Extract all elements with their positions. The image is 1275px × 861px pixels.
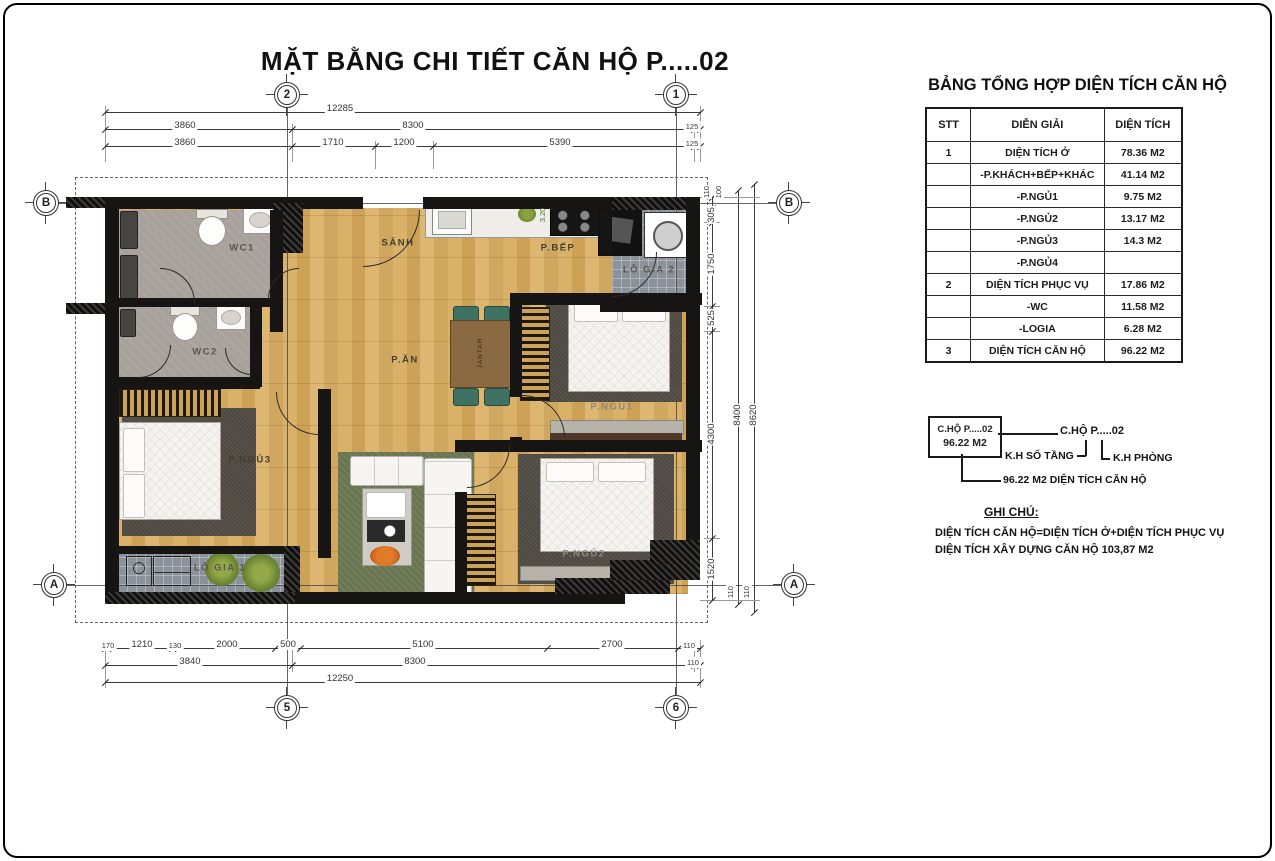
wall-hatch-bottom: [105, 592, 297, 604]
wall: [270, 210, 283, 332]
dim-label: 8300: [400, 120, 425, 131]
table-header-row: STT DIỄN GIẢI DIỆN TÍCH: [926, 108, 1182, 142]
wc1-shower: [120, 211, 138, 249]
wc2-sink-basin: [221, 310, 241, 325]
col-header-description: DIỄN GIẢI: [971, 108, 1104, 142]
bedroom3-pillow: [123, 428, 145, 472]
grid-bubble-B-right: B: [776, 190, 802, 216]
dim-line: [105, 112, 700, 113]
unit-code: C.HỘ P.....02: [937, 423, 992, 437]
bedroom2-pillow: [546, 462, 594, 482]
table-row: 3DIỆN TÍCH CĂN HỘ96.22 M2: [926, 340, 1182, 363]
wall-hatch-stub: [66, 197, 105, 208]
dim-label: 305: [707, 206, 717, 224]
dim-label: 12285: [325, 103, 355, 114]
grid-bubble-1: 1: [663, 82, 689, 108]
dim-label: 8300: [402, 656, 427, 667]
notes-heading: GHI CHÚ:: [984, 505, 1039, 519]
kitchen-sink-basin: [438, 211, 466, 229]
dim-label: 110: [726, 585, 736, 599]
plant: [242, 554, 280, 592]
area-table-title: BẢNG TỔNG HỢP DIỆN TÍCH CĂN HỘ: [905, 76, 1250, 95]
wall: [510, 293, 702, 305]
bedroom3-pillow: [123, 474, 145, 518]
blueprint-page: { "title": "MẶT BẰNG CHI TIẾT CĂN HỘ P..…: [0, 0, 1275, 861]
col-header-area: DIỆN TÍCH: [1104, 108, 1182, 142]
dim-label: 1210: [129, 639, 154, 650]
dim-line: [738, 190, 739, 604]
tech-box: [126, 556, 152, 586]
dining-chair: [453, 388, 479, 406]
wall: [118, 377, 260, 389]
table-row: -P.KHÁCH+BẾP+KHÁC41.14 M2: [926, 164, 1182, 186]
dim-label: 1710: [320, 137, 345, 148]
dim-label: 5390: [547, 137, 572, 148]
dim-label: 170: [100, 640, 117, 651]
bedroom1-wardrobe: [520, 307, 550, 401]
unit-code-box: C.HỘ P.....02 96.22 M2: [928, 416, 1002, 458]
dim-label: 3840: [177, 656, 202, 667]
dim-label: 125: [684, 138, 701, 149]
tray: [366, 492, 406, 518]
wall-right: [686, 197, 700, 555]
floor-code-label: K.H SỐ TẦNG: [1005, 450, 1074, 462]
table-row: -P.NGỦ4: [926, 252, 1182, 274]
fruit-dish: [370, 546, 400, 566]
wall: [600, 210, 612, 254]
bedroom3-wardrobe: [119, 389, 221, 417]
wc1-shower2: [120, 255, 138, 301]
wall-step: [555, 578, 670, 594]
stove: [550, 206, 599, 236]
room-label-pngu2: P.NGỦ2: [562, 549, 605, 560]
table-row: 2DIỆN TÍCH PHỤC VỤ17.86 M2: [926, 274, 1182, 296]
unit-area-note: 96.22 M2 DIỆN TÍCH CĂN HỘ: [1003, 474, 1147, 486]
wc1-toilet: [198, 216, 226, 246]
dining-chair: [484, 388, 510, 406]
wc1-sink-basin: [249, 212, 271, 228]
wall: [118, 546, 298, 554]
notes-line1: DIỆN TÍCH CĂN HỘ=DIỆN TÍCH Ở+DIỆN TÍCH P…: [935, 527, 1224, 539]
dim-line: [105, 682, 700, 683]
grid-bubble-A-left: A: [41, 572, 67, 598]
wc2-toilet: [172, 313, 198, 341]
dim-label: 110: [685, 657, 701, 668]
dim-label: 1520: [707, 557, 717, 580]
room-label-sanh: SẢNH: [382, 238, 415, 249]
area-summary-table: STT DIỄN GIẢI DIỆN TÍCH 1DIỆN TÍCH Ở78.3…: [925, 107, 1183, 363]
wall-left: [105, 197, 119, 604]
wall: [250, 307, 262, 387]
unit-area: 96.22 M2: [943, 436, 987, 451]
dim-label: 2000: [214, 639, 239, 650]
grid-bubble-5: 5: [274, 695, 300, 721]
wall: [510, 293, 522, 397]
dim-line: [754, 184, 755, 612]
dim-label: 125: [684, 121, 701, 132]
room-code-label: K.H PHÒNG: [1113, 452, 1173, 464]
dim-label: 110: [702, 185, 712, 199]
grid-bubble-2: 2: [274, 82, 300, 108]
dim-label: 525: [707, 309, 717, 327]
bedroom2-wardrobe: [466, 494, 496, 586]
table-row: -P.NGỦ314.3 M2: [926, 230, 1182, 252]
bedroom2-pillow: [598, 462, 646, 482]
table-row: 1DIỆN TÍCH Ở78.36 M2: [926, 142, 1182, 164]
dim-label: 1200: [391, 137, 416, 148]
sofa-bench: [350, 456, 424, 486]
dim-label: 5100: [410, 639, 435, 650]
unit-code-callout: C.HỘ P.....02: [1060, 425, 1124, 437]
room-label-pngu1: P.NGỦ1: [590, 402, 633, 413]
room-label-pan: P.ĂN: [391, 355, 418, 366]
page-title: MẶT BẰNG CHI TIẾT CĂN HỘ P.....02: [250, 46, 740, 77]
dim-label: 110: [742, 585, 752, 599]
room-label-pngu3: P.NGỦ3: [228, 455, 271, 466]
dim-label: 1750: [707, 252, 717, 275]
dim-label: 500: [278, 639, 298, 650]
room-label-logia2: LÔ GIA 2: [623, 265, 675, 276]
dining-table-text: JANTAR: [476, 337, 486, 370]
wall-step: [650, 540, 700, 564]
dim-label: 12250: [325, 673, 355, 684]
grid-bubble-6: 6: [663, 695, 689, 721]
room-label-logia1: LÔ GIA 1: [194, 563, 246, 574]
dim-label: 8400: [733, 403, 743, 426]
table-row: -LOGIA6.28 M2: [926, 318, 1182, 340]
dim-label: 3860: [172, 120, 197, 131]
notes-line2: DIỆN TÍCH XÂY DỰNG CĂN HỘ 103,87 M2: [935, 544, 1154, 556]
table-row: -WC11.58 M2: [926, 296, 1182, 318]
dim-label: 2700: [599, 639, 624, 650]
wall: [455, 492, 467, 592]
wall: [105, 197, 363, 209]
tech-box2: [153, 556, 191, 586]
wall-hatch-stub: [66, 303, 105, 314]
room-label-wc2: WC2: [192, 347, 218, 358]
dim-label: 4300: [707, 422, 717, 445]
room-label-wc1: WC1: [229, 243, 255, 254]
dim-label: 100: [714, 185, 724, 200]
dim-label: 110: [681, 640, 697, 651]
room-label-pbep: P.BẾP: [541, 243, 576, 254]
table-row: -P.NGỦ213.17 M2: [926, 208, 1182, 230]
col-header-stt: STT: [926, 108, 971, 142]
tablet: [367, 520, 405, 542]
table-row: -P.NGỦ19.75 M2: [926, 186, 1182, 208]
floor-plan: 3.20 JANTAR: [0, 0, 820, 740]
dim-label: 130: [167, 640, 184, 651]
washing-machine-drum: [653, 221, 683, 251]
kitchen-note: 3.20: [538, 207, 548, 224]
grid-bubble-A-right: A: [781, 572, 807, 598]
wc2-shower: [120, 309, 136, 337]
dim-label: 8620: [749, 403, 759, 426]
dim-label: 3860: [172, 137, 197, 148]
grid-bubble-B-left: B: [33, 190, 59, 216]
wall: [318, 389, 331, 558]
